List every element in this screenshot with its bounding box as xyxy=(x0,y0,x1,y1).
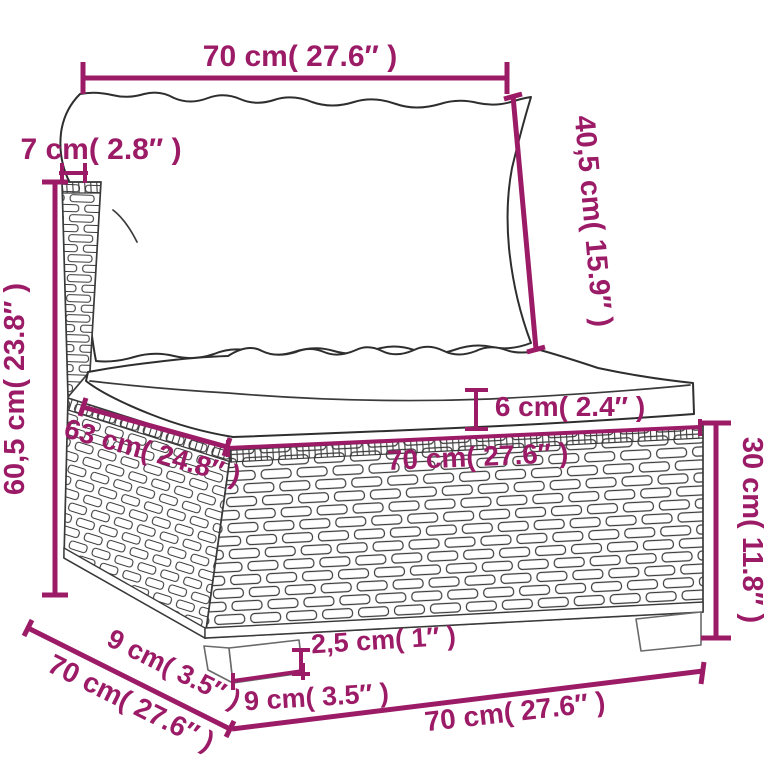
back-panel xyxy=(62,182,101,397)
dim-back-width: 70 cm( 27.6″ ) xyxy=(83,40,507,94)
dim-total-height: 60,5 cm( 23.8″ ) xyxy=(0,182,68,595)
dim-leg-height: 2,5 cm( 1″ ) xyxy=(292,621,457,674)
sofa-dimension-drawing: 70 cm( 27.6″ ) 7 cm( 2.8″ ) 60,5 cm( 23.… xyxy=(0,0,767,767)
sofa-line-art xyxy=(60,93,703,683)
dim-label-cushion-thickness: 6 cm( 2.4″ ) xyxy=(495,391,645,422)
dim-label-total-height: 60,5 cm( 23.8″ ) xyxy=(0,283,31,495)
dim-tick xyxy=(701,662,704,684)
front-right-leg xyxy=(636,612,701,651)
dim-label-back-thickness: 7 cm( 2.8″ ) xyxy=(20,133,181,166)
dim-base-height: 30 cm( 11.8″ ) xyxy=(701,423,767,638)
dim-tick xyxy=(504,94,522,99)
dim-label-base-height: 30 cm( 11.8″ ) xyxy=(736,437,767,623)
dimension-diagram: 70 cm( 27.6″ ) 7 cm( 2.8″ ) 60,5 cm( 23.… xyxy=(0,0,767,767)
dim-label-back-width: 70 cm( 27.6″ ) xyxy=(203,40,397,73)
dim-label-back-cushion-height: 40,5 cm( 15.9″ ) xyxy=(568,114,618,328)
